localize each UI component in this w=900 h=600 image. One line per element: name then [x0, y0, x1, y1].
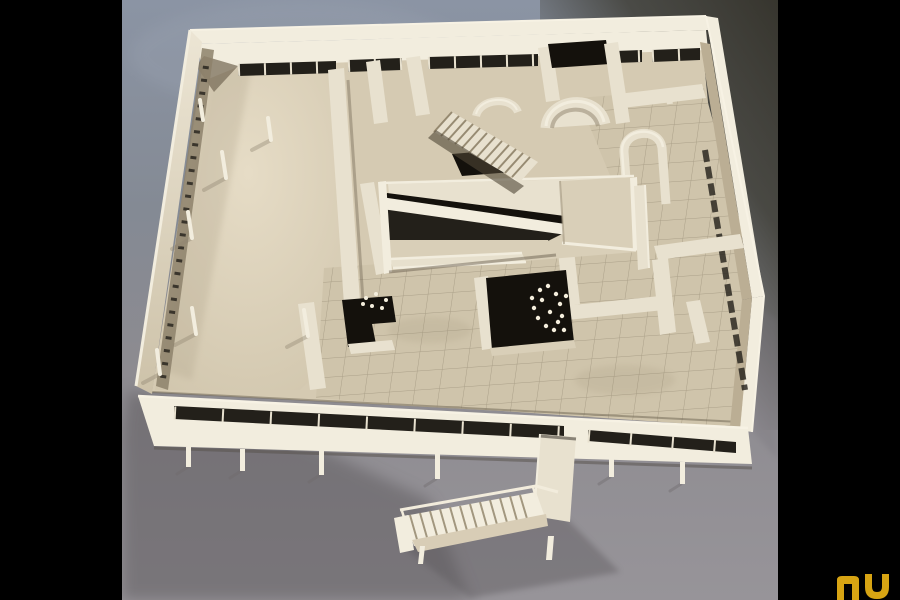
logo-letter-n — [837, 576, 859, 600]
stairwell-void — [548, 40, 610, 68]
letterbox-left — [0, 0, 122, 600]
ramp-landing — [560, 177, 637, 250]
nu-logo-icon — [834, 572, 894, 600]
screenshot-root — [0, 0, 900, 600]
letterbox-right — [778, 0, 900, 600]
logo-letter-u — [865, 574, 889, 599]
model-photograph — [122, 0, 778, 600]
planter-opening — [486, 270, 574, 350]
